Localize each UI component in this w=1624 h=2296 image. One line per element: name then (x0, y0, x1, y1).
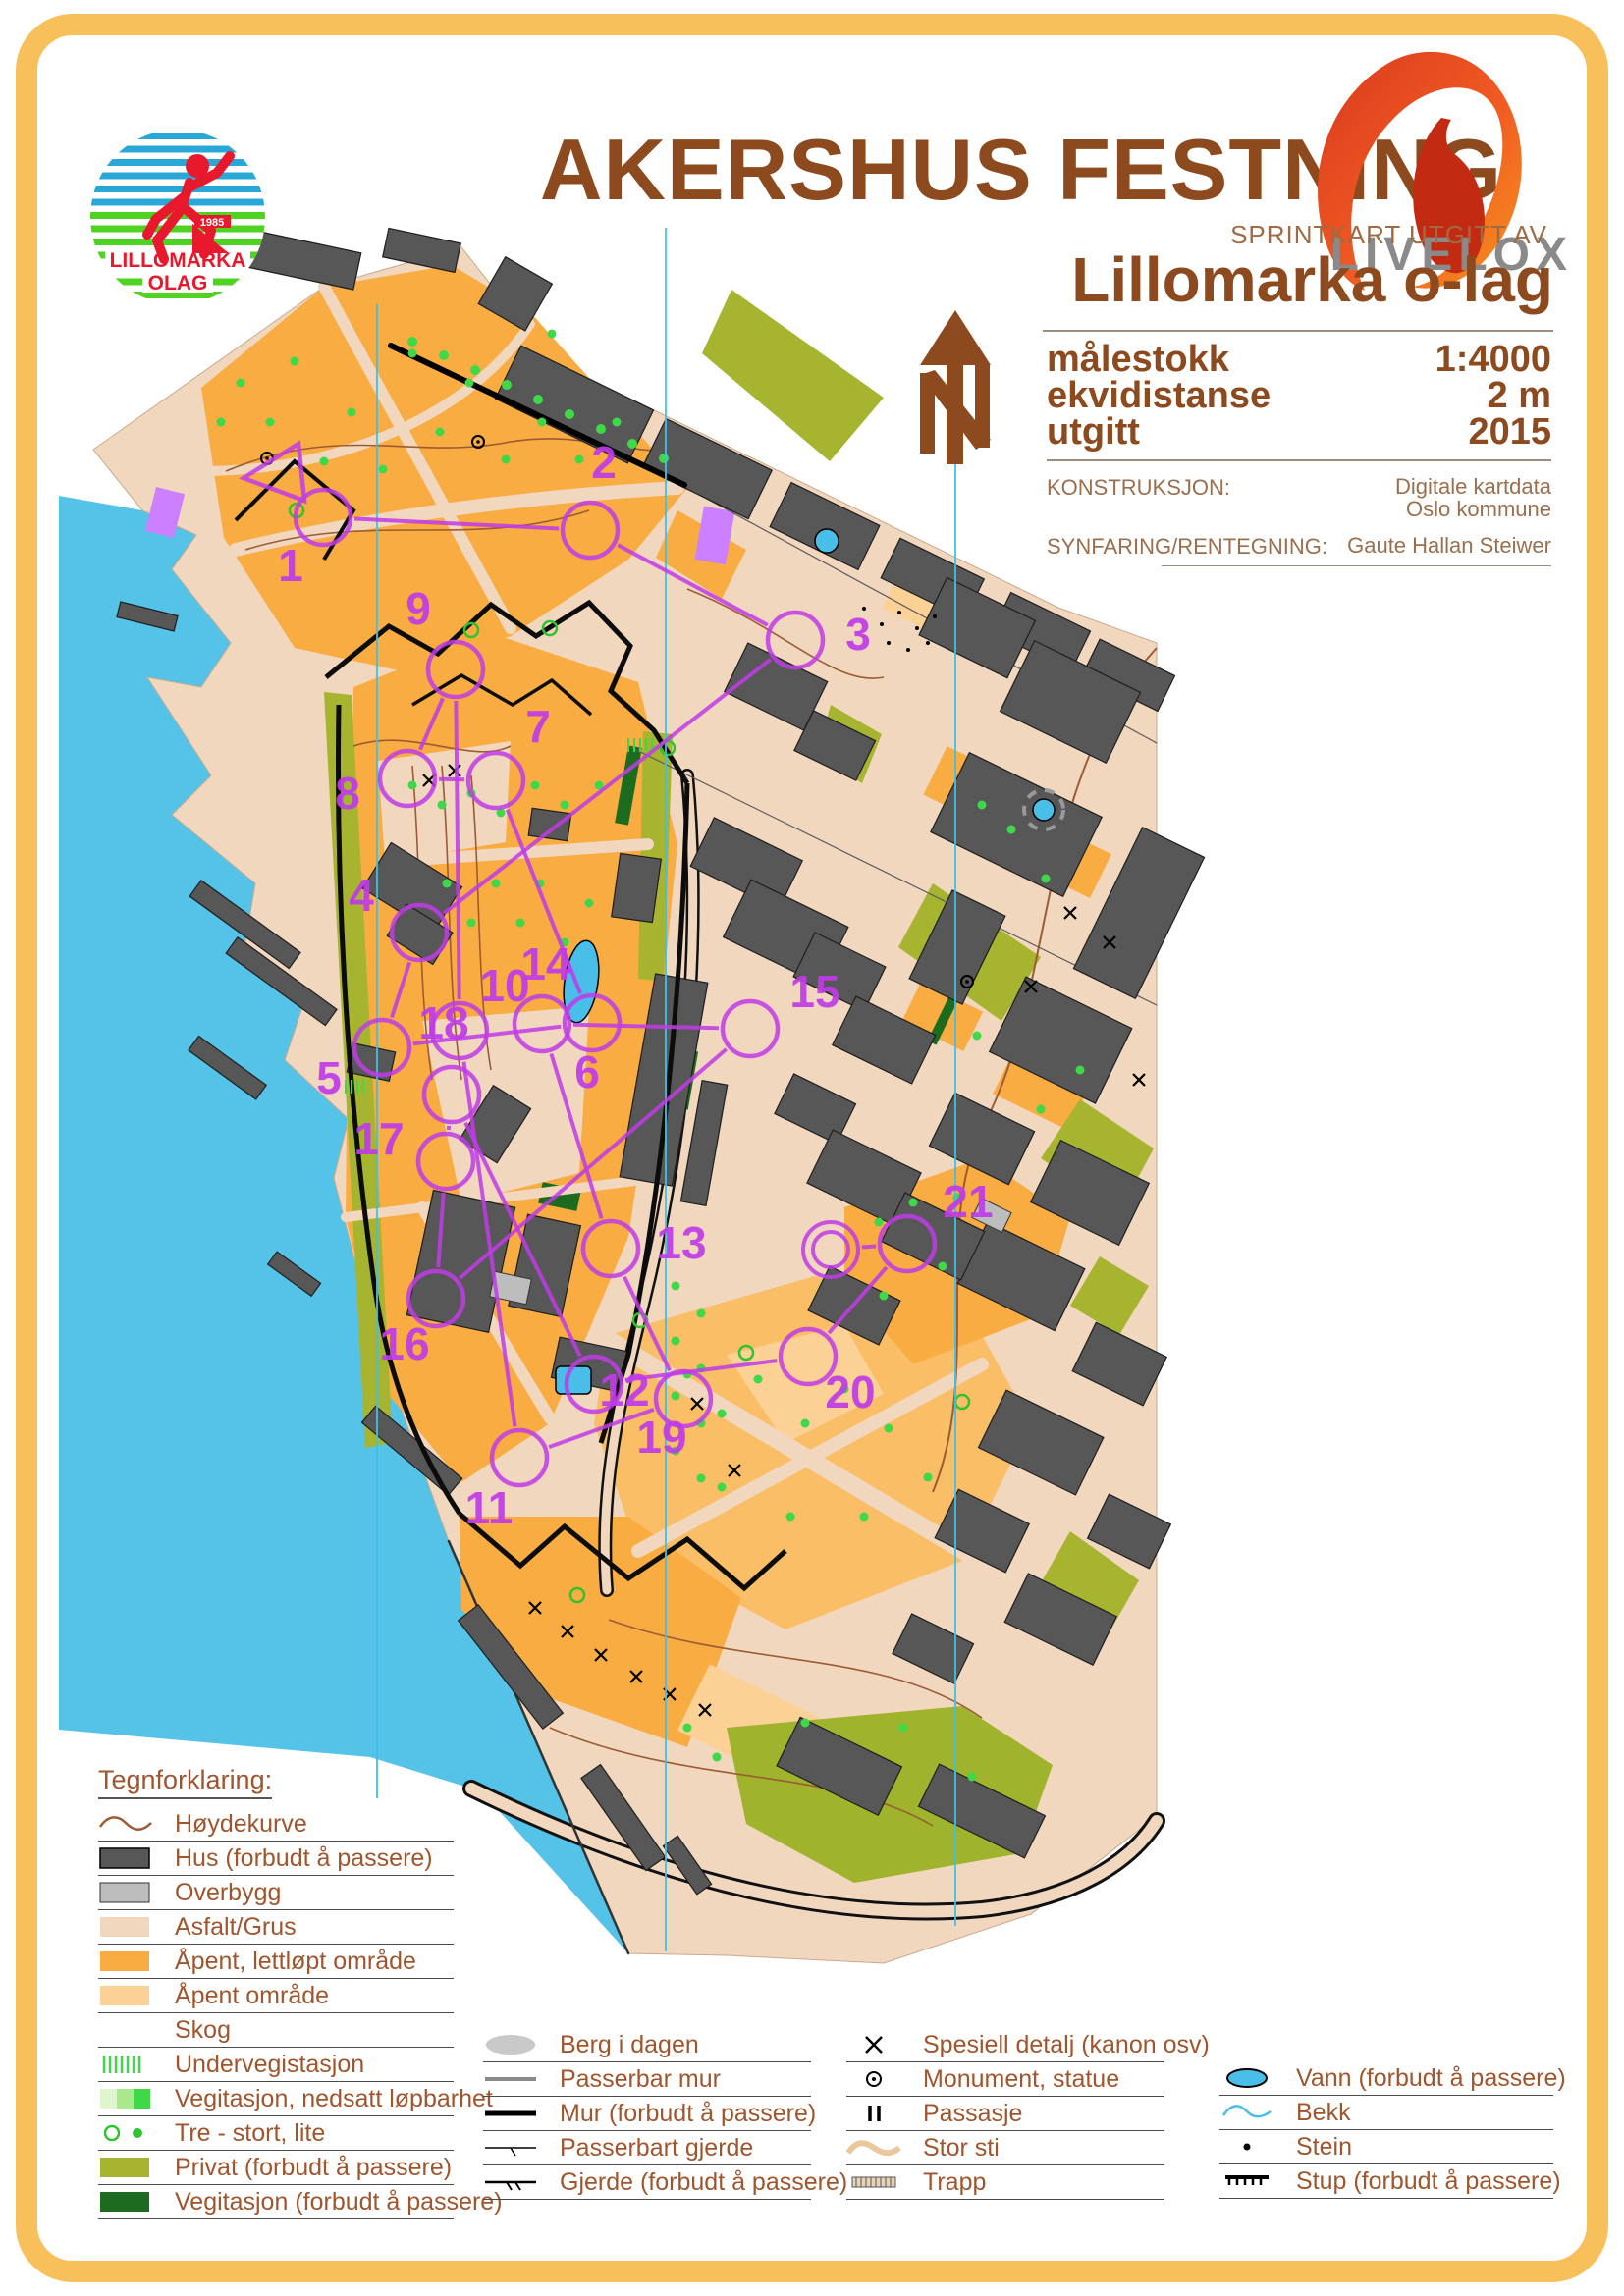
stream-icon (1219, 2100, 1296, 2125)
legend-label: Undervegistasjon (175, 2051, 364, 2079)
passable-fence-icon (483, 2135, 560, 2161)
legend-item-water: Vann (forbudt å passere) (1219, 2061, 1553, 2096)
legend-column-1: Tegnforklaring:HøydekurveHus (forbudt å … (98, 1765, 454, 2219)
club-underline (1043, 330, 1553, 332)
legend-label: Åpent, lettløpt område (175, 1948, 416, 1976)
course-leg-line (439, 779, 464, 780)
legend-label: Overbygg (175, 1879, 281, 1907)
lillomarka-club-logo: 1985 LILLOMARKA OLAG (81, 116, 267, 312)
legend-item-asphalt: Asfalt/Grus (98, 1910, 454, 1945)
info-value: 2 m (1488, 378, 1551, 414)
control-number-4: 4 (349, 870, 374, 921)
legend-column-2: Berg i dagenPasserbar murMur (forbudt å … (483, 2028, 811, 2200)
map-credits: KONSTRUKSJON:Digitale kartdataOslo kommu… (1047, 475, 1551, 573)
legend-item-open: Åpent område (98, 1979, 454, 2013)
wall-icon (483, 2101, 560, 2126)
legend-label: Privat (forbudt å passere) (175, 2154, 452, 2182)
legend-item-passable-fence: Passerbart gjerde (483, 2131, 811, 2165)
steps-icon (846, 2169, 923, 2195)
legend-item-passable-wall: Passerbar mur (483, 2062, 811, 2097)
control-number-16: 16 (379, 1318, 429, 1369)
legend-item-tree: Tre - stort, lite (98, 2116, 454, 2151)
credit-label: KONSTRUKSJON: (1047, 475, 1230, 520)
legend-label: Passerbar mur (560, 2065, 721, 2094)
water-icon (1219, 2065, 1296, 2091)
stone-icon (1219, 2134, 1296, 2160)
legend-item-open-easy: Åpent, lettløpt område (98, 1945, 454, 1979)
forest-icon (98, 2017, 175, 2043)
monument-icon (846, 2066, 923, 2092)
info-value: 1:4000 (1435, 342, 1551, 378)
legend-label: Gjerde (forbudt å passere) (560, 2168, 847, 2197)
legend-label: Åpent område (175, 1982, 329, 2010)
north-arrow-icon (908, 304, 1001, 471)
passable-wall-icon (483, 2066, 560, 2092)
info-row: utgitt2015 (1047, 414, 1551, 451)
control-number-2: 2 (591, 437, 617, 488)
path-icon (846, 2135, 923, 2161)
info-label: målestokk (1047, 342, 1229, 378)
legend-column-3: Spesiell detalj (kanon osv)Monument, sta… (846, 2028, 1164, 2200)
club-name: Lillomarka o-lag (1071, 243, 1553, 316)
credit-row: SYNFARING/RENTEGNING:Gaute Hallan Steiwe… (1047, 534, 1551, 560)
control-number-8: 8 (335, 768, 360, 819)
legend-item-canopy: Overbygg (98, 1876, 454, 1910)
legend-label: Tre - stort, lite (175, 2119, 325, 2148)
logo-club-line1: LILLOMARKA (110, 249, 246, 272)
tree-icon (98, 2120, 175, 2146)
credit-row: KONSTRUKSJON:Digitale kartdataOslo kommu… (1047, 475, 1551, 520)
bare-rock-icon (483, 2032, 560, 2057)
legend-column-4: Vann (forbudt å passere)BekkSteinStup (f… (1219, 2061, 1553, 2199)
legend-item-house: Hus (forbudt å passere) (98, 1842, 454, 1876)
control-number-11: 11 (465, 1482, 514, 1533)
control-number-1: 1 (278, 540, 303, 591)
veg-forbidden-icon (98, 2189, 175, 2215)
legend-label: Spesiell detalj (kanon osv) (923, 2031, 1210, 2059)
legend-label: Passerbart gjerde (560, 2134, 753, 2163)
info-row: ekvidistanse2 m (1047, 378, 1551, 414)
legend-label: Bekk (1296, 2099, 1351, 2127)
control-number-9: 9 (406, 583, 431, 634)
info-value: 2015 (1468, 414, 1551, 451)
control-number-7: 7 (525, 701, 551, 752)
fence-icon (483, 2169, 560, 2195)
legend-label: Berg i dagen (560, 2031, 699, 2059)
legend-label: Stup (forbudt å passere) (1296, 2167, 1561, 2196)
control-number-19: 19 (636, 1412, 686, 1463)
legend-label: Asfalt/Grus (175, 1913, 297, 1942)
legend-item-bare-rock: Berg i dagen (483, 2028, 811, 2062)
legend-item-veg-reduced: Vegitasjon, nedsatt løpbarhet (98, 2082, 454, 2116)
info-label: ekvidistanse (1047, 378, 1271, 414)
legend-item-contour: Høydekurve (98, 1807, 454, 1842)
legend-item-special: Spesiell detalj (kanon osv) (846, 2028, 1164, 2062)
control-number-15: 15 (789, 966, 839, 1017)
map-sheet-page: 123456789101112131415161718192021 (0, 0, 1624, 2296)
legend-item-stream: Bekk (1219, 2096, 1553, 2130)
legend-label: Høydekurve (175, 1810, 307, 1839)
info-underline (1047, 459, 1551, 461)
legend-item-passage: Passasje (846, 2097, 1164, 2131)
special-icon (846, 2032, 923, 2057)
map-info: målestokk1:4000ekvidistanse2 mutgitt2015 (1047, 342, 1551, 451)
credit-label: SYNFARING/RENTEGNING: (1047, 534, 1327, 560)
legend-item-undergrowth: Undervegistasjon (98, 2048, 454, 2082)
legend-item-forest: Skog (98, 2013, 454, 2048)
asphalt-icon (98, 1914, 175, 1940)
credit-value: Digitale kartdataOslo kommune (1395, 475, 1551, 520)
legend-item-steps: Trapp (846, 2165, 1164, 2200)
logo-year: 1985 (200, 217, 224, 229)
legend-label: Mur (forbudt å passere) (560, 2100, 816, 2128)
legend-label: Stein (1296, 2133, 1352, 2162)
control-number-13: 13 (656, 1217, 706, 1268)
contour-icon (98, 1811, 175, 1837)
control-number-14: 14 (520, 938, 571, 989)
undergrowth-icon (98, 2052, 175, 2077)
open-icon (98, 1983, 175, 2008)
control-number-18: 18 (418, 997, 468, 1048)
info-label: utgitt (1047, 414, 1140, 451)
veg-reduced-icon (98, 2086, 175, 2111)
legend-label: Passasje (923, 2100, 1022, 2128)
control-number-20: 20 (825, 1366, 875, 1417)
legend-label: Hus (forbudt å passere) (175, 1844, 433, 1873)
control-number-6: 6 (574, 1046, 600, 1097)
credits-underline (1162, 565, 1551, 566)
control-number-5: 5 (316, 1052, 342, 1103)
logo-club-line2: OLAG (148, 272, 208, 294)
legend-title: Tegnforklaring: (98, 1765, 272, 1799)
course-leg-line (862, 1246, 876, 1247)
legend-label: Vegitasjon (forbudt å passere) (175, 2188, 503, 2216)
legend-label: Trapp (923, 2168, 986, 2197)
legend-label: Monument, statue (923, 2065, 1119, 2094)
legend-item-veg-forbidden: Vegitasjon (forbudt å passere) (98, 2185, 454, 2219)
open-easy-icon (98, 1949, 175, 1974)
legend-label: Skog (175, 2016, 231, 2045)
runner-head (186, 154, 209, 178)
legend-item-stone: Stein (1219, 2130, 1553, 2164)
legend-item-wall: Mur (forbudt å passere) (483, 2097, 811, 2131)
control-number-17: 17 (353, 1113, 404, 1164)
house-icon (98, 1845, 175, 1871)
credit-value: Gaute Hallan Steiwer (1347, 534, 1551, 560)
control-number-21: 21 (943, 1176, 993, 1227)
legend-item-fence: Gjerde (forbudt å passere) (483, 2165, 811, 2200)
legend-label: Stor sti (923, 2134, 1000, 2163)
legend-item-path: Stor sti (846, 2131, 1164, 2165)
control-number-3: 3 (845, 609, 871, 660)
legend-label: Vann (forbudt å passere) (1296, 2064, 1566, 2093)
canopy-icon (98, 1880, 175, 1905)
legend-item-private: Privat (forbudt å passere) (98, 2151, 454, 2185)
cliff-icon (1219, 2168, 1296, 2194)
legend-label: Vegitasjon, nedsatt løpbarhet (175, 2085, 493, 2113)
private-icon (98, 2155, 175, 2180)
legend-item-cliff: Stup (forbudt å passere) (1219, 2164, 1553, 2199)
legend-item-monument: Monument, statue (846, 2062, 1164, 2097)
passage-icon (846, 2101, 923, 2126)
info-row: målestokk1:4000 (1047, 342, 1551, 378)
